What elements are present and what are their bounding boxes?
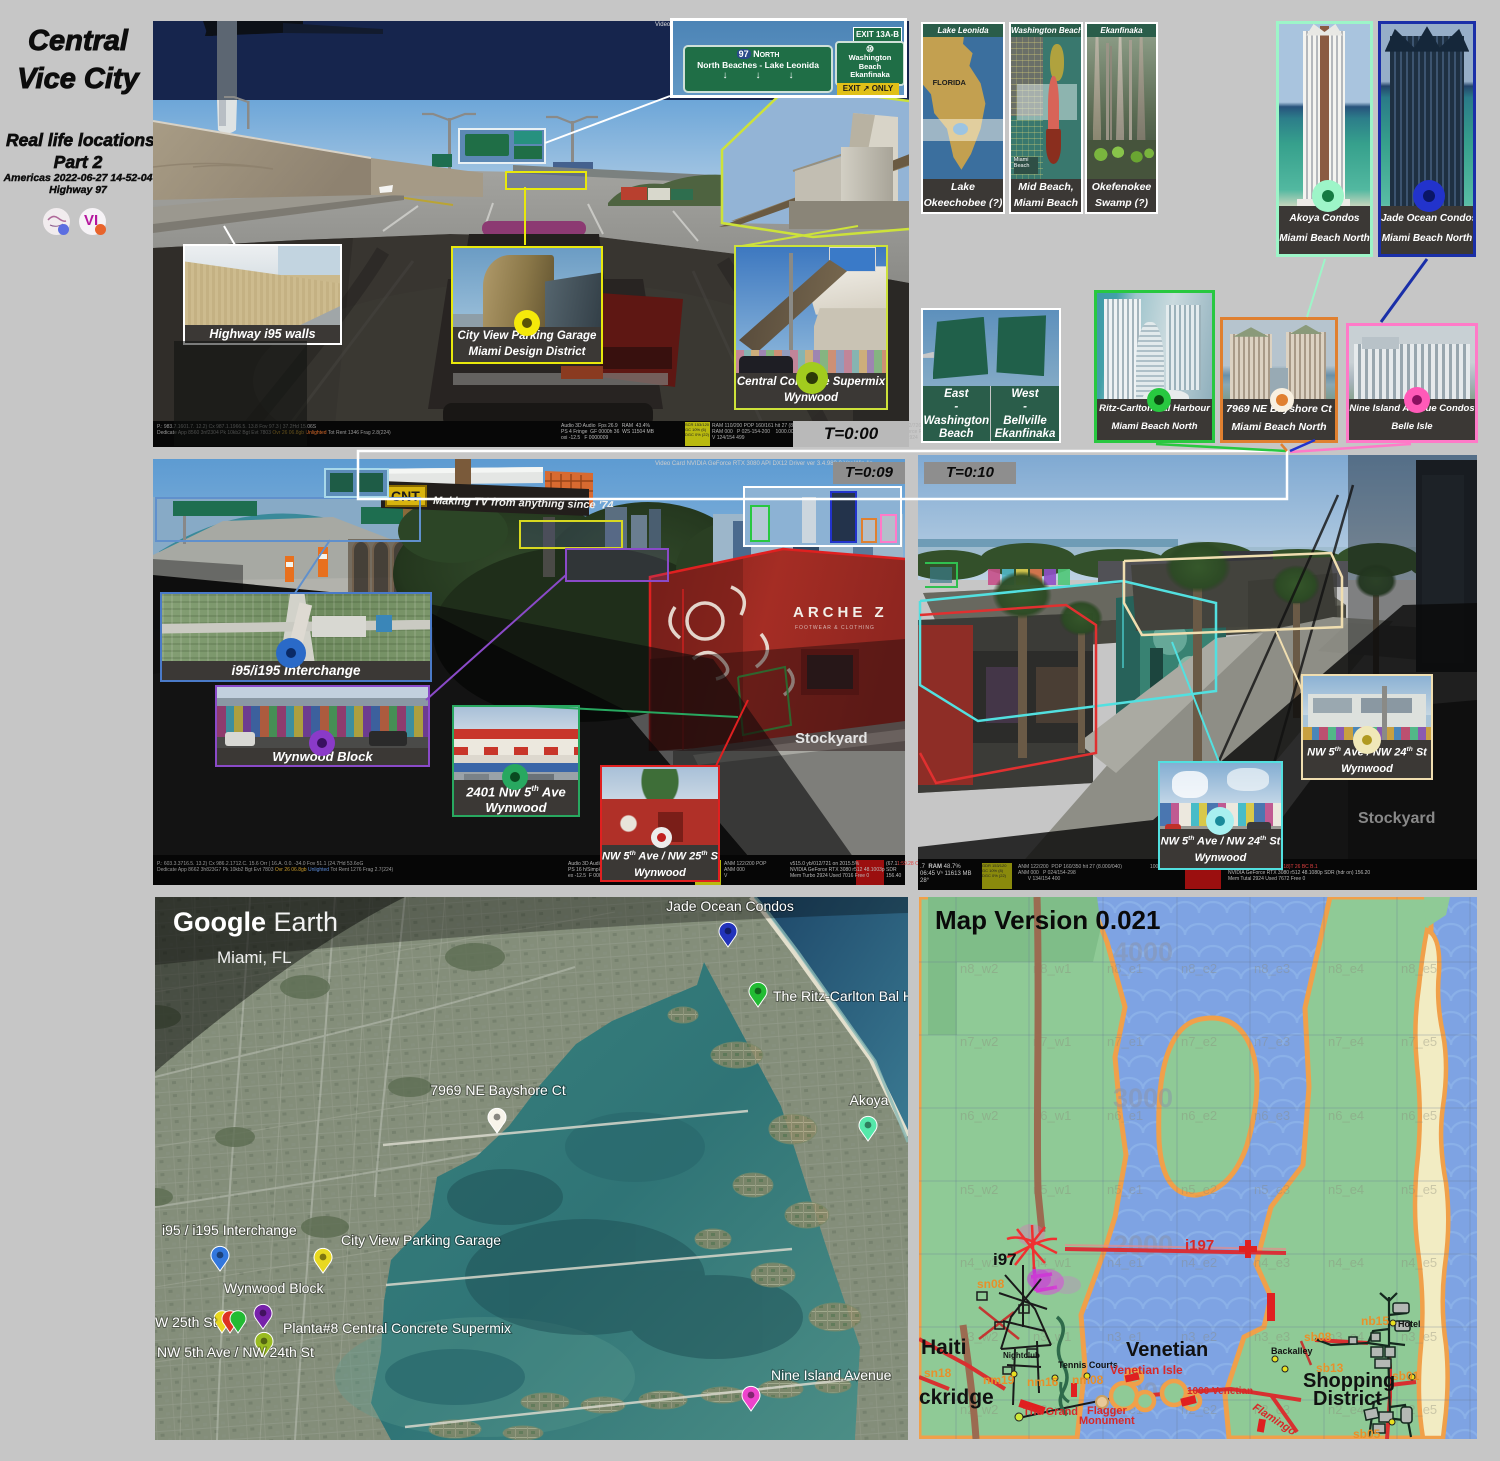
svg-text:The Ritz-Carlton Bal Harbo: The Ritz-Carlton Bal Harbo (773, 988, 908, 1004)
svg-text:Nightclub: Nightclub (1003, 1351, 1040, 1360)
svg-text:7969 NE Bayshore Ct: 7969 NE Bayshore Ct (430, 1082, 566, 1098)
svg-text:Tennis Courts: Tennis Courts (1058, 1360, 1118, 1370)
svg-text:Stockyard: Stockyard (795, 730, 868, 747)
svg-text:i97: i97 (993, 1250, 1017, 1269)
svg-text:n7_e4: n7_e4 (1328, 1034, 1364, 1049)
svg-text:n5_e2: n5_e2 (1181, 1182, 1217, 1197)
svg-text:Venetian Isle: Venetian Isle (1110, 1363, 1183, 1377)
svg-text:n6_e4: n6_e4 (1328, 1108, 1364, 1123)
svg-text:sb08: sb08 (1304, 1330, 1332, 1344)
svg-text:Backalley: Backalley (1271, 1346, 1313, 1356)
svg-text:3000: 3000 (1113, 1083, 1173, 1113)
svg-text:n4_e5: n4_e5 (1401, 1255, 1437, 1270)
svg-text:n8_e3: n8_e3 (1254, 961, 1290, 976)
svg-text:ARCHE Z: ARCHE Z (793, 604, 888, 621)
svg-text:Hotel: Hotel (1398, 1319, 1421, 1329)
svg-text:Monument: Monument (1079, 1415, 1135, 1427)
svg-text:Jade Ocean Condos: Jade Ocean Condos (666, 898, 794, 914)
svg-text:n4_e4: n4_e4 (1328, 1255, 1364, 1270)
svg-text:n3_e3: n3_e3 (1254, 1329, 1290, 1344)
svg-text:4000: 4000 (1113, 937, 1173, 967)
svg-text:Nine Island Avenue: Nine Island Avenue (771, 1367, 892, 1383)
svg-text:n7_e5: n7_e5 (1401, 1034, 1437, 1049)
svg-text:The Grand: The Grand (1023, 1406, 1078, 1418)
svg-text:n6_e3: n6_e3 (1254, 1108, 1290, 1123)
svg-text:n8_e4: n8_e4 (1328, 961, 1364, 976)
svg-text:Venetian: Venetian (1126, 1339, 1208, 1361)
svg-text:n6_e2: n6_e2 (1181, 1108, 1217, 1123)
svg-text:i95 / i195 Interchange: i95 / i195 Interchange (162, 1222, 297, 1238)
svg-text:sn18: sn18 (924, 1366, 952, 1380)
svg-text:n7_e2: n7_e2 (1181, 1034, 1217, 1049)
svg-text:n5_e4: n5_e4 (1328, 1182, 1364, 1197)
svg-text:n7_e3: n7_e3 (1254, 1034, 1290, 1049)
svg-text:n3_w1: n3_w1 (1033, 1329, 1071, 1344)
svg-text:City View Parking Garage: City View Parking Garage (341, 1232, 501, 1248)
svg-text:Akoya: Akoya (850, 1092, 889, 1108)
svg-text:n8_w2: n8_w2 (960, 961, 998, 976)
svg-text:nm08: nm08 (1072, 1373, 1104, 1387)
svg-text:n5_e3: n5_e3 (1254, 1182, 1290, 1197)
svg-text:sn08: sn08 (977, 1277, 1005, 1291)
svg-text:Wynwood Block: Wynwood Block (224, 1280, 324, 1296)
svg-text:n5_e1: n5_e1 (1107, 1182, 1143, 1197)
svg-text:nb15: nb15 (1361, 1314, 1389, 1328)
svg-text:Miami, FL: Miami, FL (217, 948, 292, 967)
svg-text:i197: i197 (1185, 1237, 1214, 1254)
svg-text:District: District (1313, 1388, 1382, 1410)
svg-text:2000: 2000 (1113, 1230, 1173, 1260)
svg-text:n7_w2: n7_w2 (960, 1034, 998, 1049)
svg-text:sb05: sb05 (1353, 1427, 1381, 1439)
svg-text:n4_e3: n4_e3 (1254, 1255, 1290, 1270)
svg-text:Planta#8 Central Concrete Supe: Planta#8 Central Concrete Supermix (283, 1320, 511, 1336)
svg-text:NW 5th Ave / NW 24th St: NW 5th Ave / NW 24th St (157, 1344, 314, 1360)
svg-text:Stockyard: Stockyard (1358, 810, 1435, 827)
svg-text:ckridge: ckridge (919, 1386, 994, 1409)
svg-text:n7_e1: n7_e1 (1107, 1034, 1143, 1049)
svg-text:n6_w2: n6_w2 (960, 1108, 998, 1123)
svg-text:FOOTWEAR & CLOTHING: FOOTWEAR & CLOTHING (795, 625, 875, 631)
svg-text:W 25th St: W 25th St (155, 1314, 217, 1330)
svg-text:sb01: sb01 (1392, 1369, 1420, 1383)
svg-text:1000 Venetian: 1000 Venetian (1187, 1386, 1253, 1397)
svg-text:nm16: nm16 (1027, 1375, 1059, 1389)
svg-text:n6_e5: n6_e5 (1401, 1108, 1437, 1123)
svg-text:Map Version 0.021: Map Version 0.021 (935, 905, 1160, 935)
svg-text:nm19: nm19 (983, 1373, 1015, 1387)
svg-text:Google Earth: Google Earth (173, 907, 338, 937)
svg-text:n4_e2: n4_e2 (1181, 1255, 1217, 1270)
svg-text:n5_e5: n5_e5 (1401, 1182, 1437, 1197)
svg-text:n8_e5: n8_e5 (1401, 961, 1437, 976)
svg-text:n5_w2: n5_w2 (960, 1182, 998, 1197)
svg-text:Haiti: Haiti (921, 1336, 967, 1359)
svg-text:n8_e2: n8_e2 (1181, 961, 1217, 976)
